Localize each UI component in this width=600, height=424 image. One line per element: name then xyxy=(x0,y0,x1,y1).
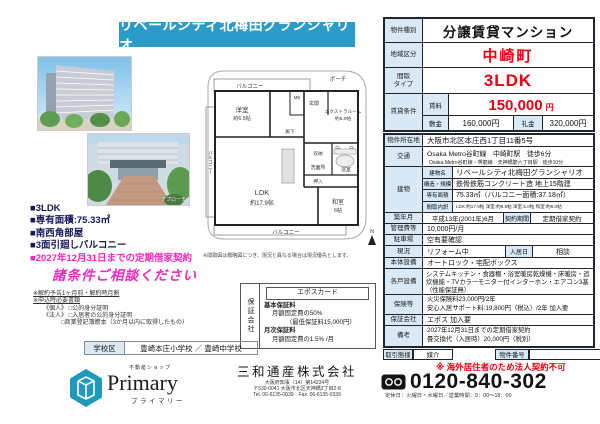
rent-conditions-label: 賃貸条件 xyxy=(385,94,423,130)
condition-label: 現況 xyxy=(385,246,423,257)
mgmt-fee-value: 10,000円/月 xyxy=(423,224,593,234)
access-line1: Osaka Metro谷町線 中崎町駅 徒歩6分 xyxy=(423,147,593,158)
rent-bottom: 敷金 160,000円 礼金 320,000円 xyxy=(423,116,593,130)
parking-value: 空有要確認 xyxy=(423,235,593,245)
guarantee-basic-label: 基本保証料 xyxy=(264,302,371,311)
movein-value: 相談 xyxy=(533,246,593,257)
row-base-equipment: 本体設備 オートロック・宅配ボックス xyxy=(385,258,593,269)
guarantee-company-box: 保証会社 エポスカード 基本保証料 月額固定費の50% （最低保証料15,000… xyxy=(240,283,376,349)
building-structure-row: 構造・規模 鉄骨鉄筋コンクリート造 地上15階建 xyxy=(423,179,593,190)
building-size-row: 専有面積 75.33㎡（バルコニー面積:37.18㎡） xyxy=(423,190,593,201)
primary-shop-logo: 不動産ショップ Primary プライマリー xyxy=(68,364,218,420)
floor-plan-drawing: バルコニー ポーチ MB 洋室 約6.5帖 玄関 エクストラルーム 約5.0帖 … xyxy=(194,57,378,250)
row-guarantor: 保証会社 エポス 加入要 xyxy=(385,315,593,326)
contract-term-label: 契約期間 xyxy=(503,213,531,223)
building-label: 建物 xyxy=(385,167,423,212)
remarks-label: 備考 xyxy=(385,326,423,346)
floor-plan-note: ※間取図は概略図につき、現況と異なる場合は現況優先とします。 xyxy=(203,252,379,259)
school-district-label: 学校区 xyxy=(85,342,125,354)
unit-equipment-text: システムキッチン・食器棚・浴室暖房乾燥機・床暖房・追炊機能・TVカラーモニター付… xyxy=(423,269,593,298)
insurance-label: 保険等 xyxy=(385,295,423,314)
parking-label: 駐車場 xyxy=(385,235,423,245)
fp-balcony-top-label: バルコニー xyxy=(236,83,263,90)
fp-oshiire-label: 押入 xyxy=(313,178,323,185)
access-label: 交通 xyxy=(385,147,423,166)
guarantee-basic-line1: 月額固定費の50% xyxy=(264,310,371,319)
fp-extra-room-size: 約5.0帖 xyxy=(335,115,351,122)
layout-label-line2: タイプ xyxy=(394,81,414,89)
address-label: 物件所在地 xyxy=(385,135,423,146)
row-mgmt-fee: 管理費等 10,000円/月 xyxy=(385,224,593,235)
highlight-item: ■専有面積:75.33㎡ xyxy=(30,215,210,227)
approach-caption: アプローチ xyxy=(161,196,186,203)
insurance-line1: 火災保険料23,000円/2年 xyxy=(427,296,593,305)
building-structure-label: 構造・規模 xyxy=(423,179,453,189)
remarks-value: 2027年12月31日までの定期借家契約 畳交換代（入居時）20,000円（税別… xyxy=(423,326,593,346)
row-rent: 賃貸条件 賃料 150,000 円 敷金 160,000円 礼金 320,000… xyxy=(385,94,593,130)
built-value: 平成13年(2001年)6月 xyxy=(423,213,503,223)
guarantor-value: エポス 加入要 xyxy=(423,315,593,325)
fp-hallway-label: 廊下 xyxy=(285,128,295,135)
fp-ldk-size: 約17.9帖 xyxy=(250,199,274,207)
key-money-label: 礼金 xyxy=(513,116,543,130)
rent-value: 150,000 円 xyxy=(449,94,593,115)
address-value: 大阪市北区本庄西1丁目11番5号 xyxy=(423,135,593,146)
rent-top: 賃料 150,000 円 xyxy=(423,94,593,116)
remarks-line1: 2027年12月31日までの定期借家契約 xyxy=(427,327,593,336)
highlight-item: ■3LDK xyxy=(30,203,210,215)
spec-table-top: 物件種別 分譲賃貸マンション 地域区分 中崎町 間取 タイプ 3LDK 賃貸条件… xyxy=(383,17,595,132)
guarantee-monthly-label: 月次保証料 xyxy=(264,327,371,336)
company-name: 三和通産株式会社 xyxy=(227,361,367,380)
building-rooms-row: 間取内訳 LDK:約17.9帖 洋室:約6.5帖 洋室:5.0帖 和室:約6.0… xyxy=(423,202,593,212)
fp-washitsu-size: 6帖 xyxy=(334,206,342,214)
entrance-approach-photo: アプローチ xyxy=(88,134,189,205)
company-block: 三和通産株式会社 大阪府知事（14）第14234号 〒530-0041 大阪市北… xyxy=(227,361,367,399)
building-structure-value: 鉄骨鉄筋コンクリート造 地上15階建 xyxy=(453,179,593,189)
built-label: 築年月 xyxy=(385,213,423,223)
guarantee-side-label: 保証会社 xyxy=(241,284,260,348)
insurance-line2: 安心入居サポート料:19,800円（税込）/2年 加入要 xyxy=(427,305,593,314)
fp-washitsu-label: 和室 xyxy=(332,198,344,206)
rent-amount: 150,000 xyxy=(488,97,542,114)
primary-logo-icon xyxy=(68,368,104,408)
row-building: 建物 建物名 リベールシティ北梅田グランシャリオ 構造・規模 鉄骨鉄筋コンクリー… xyxy=(385,167,593,213)
school-district-value: 豊崎本庄小学校 ／ 豊崎中学校 xyxy=(125,342,257,354)
condition-value: リフォーム中 xyxy=(423,246,505,257)
building-size-value: 75.33㎡（バルコニー面積:37.18㎡） xyxy=(453,190,593,200)
fp-mb-label: MB xyxy=(294,95,300,100)
building-exterior-photo xyxy=(38,57,131,130)
layout-label: 間取 タイプ xyxy=(385,68,423,93)
row-address: 物件所在地 大阪市北区本庄西1丁目11番5号 xyxy=(385,135,593,147)
highlight-item: ■南西角部屋 xyxy=(30,228,210,240)
rent-unit: 円 xyxy=(546,102,554,113)
unit-equipment-label: 各戸設備 xyxy=(385,269,423,294)
svg-text:N: N xyxy=(370,229,374,235)
fp-balcony-left-label: バルコニー xyxy=(208,151,214,174)
row-parking: 駐車場 空有要確認 xyxy=(385,235,593,246)
row-access: 交通 Osaka Metro谷町線 中崎町駅 徒歩6分 Osaka Metro谷… xyxy=(385,147,593,167)
layout-value: 3LDK xyxy=(423,68,593,93)
row-layout: 間取 タイプ 3LDK xyxy=(385,68,593,94)
deal-type-value: 媒介 xyxy=(413,349,453,360)
building-name-label: 建物名 xyxy=(423,167,453,178)
floor-plan: バルコニー ポーチ MB 洋室 約6.5帖 玄関 エクストラルーム 約5.0帖 … xyxy=(194,57,378,250)
consult-message: 諸条件ご相談ください xyxy=(52,264,197,284)
building-exterior-illustration xyxy=(38,57,131,130)
company-telfax: Tel. 06-6135-0039 Fax. 06-6135-0339 xyxy=(227,392,367,398)
base-equipment-value: オートロック・宅配ボックス xyxy=(423,258,593,268)
unit-equipment-value: システムキッチン・食器棚・浴室暖房乾燥機・床暖房・追炊機能・TVカラーモニター付… xyxy=(423,269,593,294)
logo-name: Primary xyxy=(107,371,185,395)
row-remarks: 備考 2027年12月31日までの定期借家契約 畳交換代（入居時）20,000円… xyxy=(385,326,593,346)
entrance-approach-illustration xyxy=(88,134,189,205)
building-rooms-value: LDK:約17.9帖 洋室:約6.5帖 洋室:5.0帖 和室:約6.0帖 xyxy=(453,202,593,212)
fine-print: ※解約予告1ヶ月前・解約時月割 ※申込時必要書類 《個人》 □公的身分証明 《法… xyxy=(33,291,188,327)
property-title-banner: リベールシティ北梅田グランシャリオ xyxy=(119,22,355,47)
row-condition: 現況 リフォーム中 入居日 相談 xyxy=(385,246,593,258)
property-type-value: 分譲賃貸マンション xyxy=(423,19,593,42)
fp-porch-label: ポーチ xyxy=(330,76,347,83)
school-district-row: 学校区 豊崎本庄小学校 ／ 豊崎中学校 xyxy=(84,341,258,355)
fp-balcony-bottom-label: バルコニー xyxy=(272,229,299,236)
building-size-label: 専有面積 xyxy=(423,190,453,200)
rent-wrap: 賃料 150,000 円 敷金 160,000円 礼金 320,000円 xyxy=(423,94,593,130)
row-property-type: 物件種別 分譲賃貸マンション xyxy=(385,19,593,43)
row-unit-equipment: 各戸設備 システムキッチン・食器棚・浴室暖房乾燥機・床暖房・追炊機能・TVカラー… xyxy=(385,269,593,295)
contract-term-value: 定期借家契約 xyxy=(531,213,593,223)
business-hours: 定休日：火曜日・水曜日／営業時間：9：00～18：00 xyxy=(385,391,512,399)
deposit-label: 敷金 xyxy=(423,116,449,130)
building-rooms-label: 間取内訳 xyxy=(423,202,453,212)
layout-label-line1: 間取 xyxy=(397,73,410,81)
fp-bathroom-label: 浴室 xyxy=(341,166,351,173)
movein-label: 入居日 xyxy=(505,246,533,257)
area-label: 地域区分 xyxy=(385,43,423,67)
rent-label: 賃料 xyxy=(423,94,449,115)
key-money-value: 320,000円 xyxy=(543,116,593,130)
building-details: 建物名 リベールシティ北梅田グランシャリオ 構造・規模 鉄骨鉄筋コンクリート造 … xyxy=(423,167,593,212)
building-name-row: 建物名 リベールシティ北梅田グランシャリオ xyxy=(423,167,593,179)
remarks-line2: 畳交換代（入居時）20,000円（税別） xyxy=(427,336,593,345)
fp-western-room-size: 約6.5帖 xyxy=(233,114,251,122)
highlight-list: ■3LDK ■専有面積:75.33㎡ ■南西角部屋 ■3面引廻しバルコニー ■2… xyxy=(30,203,210,265)
access-line2: Osaka Metro谷町線・堺筋線 天神橋筋六丁目駅 徒歩10分 xyxy=(423,158,593,167)
guarantor-label: 保証会社 xyxy=(385,315,423,325)
fp-storage-label: 収納 xyxy=(313,150,323,157)
property-number-label: 物件番号 xyxy=(495,349,529,360)
highlight-item: ■3面引廻しバルコニー xyxy=(30,240,210,252)
insurance-value: 火災保険料23,000円/2年 安心入居サポート料:19,800円（税込）/2年… xyxy=(423,295,593,314)
flyer-page: リベールシティ北梅田グランシャリオ xyxy=(0,0,600,424)
fine-print-line: 《個人》 □公的身分証明 xyxy=(33,306,188,313)
spec-table-main: 物件所在地 大阪市北区本庄西1丁目11番5号 交通 Osaka Metro谷町線… xyxy=(383,133,595,348)
fp-entrance-label: 玄関 xyxy=(309,100,319,107)
guarantee-monthly-line1: 月額固定費の1.5% /月 xyxy=(264,336,371,345)
guarantee-card-name: エポスカード xyxy=(266,287,369,300)
fp-cl2-label: CL xyxy=(349,145,355,150)
guarantee-content: エポスカード 基本保証料 月額固定費の50% （最低保証料15,000円） 月次… xyxy=(260,284,375,348)
base-equipment-label: 本体設備 xyxy=(385,258,423,268)
logo-kana: プライマリー xyxy=(107,395,185,405)
row-insurance: 保険等 火災保険料23,000円/2年 安心入居サポート料:19,800円（税込… xyxy=(385,295,593,315)
fp-western-room-label: 洋室 xyxy=(236,105,250,114)
property-number-value xyxy=(529,349,600,360)
primary-logo-text: 不動産ショップ Primary プライマリー xyxy=(107,364,185,405)
building-name-value: リベールシティ北梅田グランシャリオ xyxy=(453,167,593,178)
mgmt-fee-label: 管理費等 xyxy=(385,224,423,234)
access-value: Osaka Metro谷町線 中崎町駅 徒歩6分 Osaka Metro谷町線・… xyxy=(423,147,593,166)
deal-type-label: 取引態様 xyxy=(383,349,413,360)
fp-washroom-label: 洗面所 xyxy=(310,164,325,171)
fp-cl1-label: CL xyxy=(335,145,341,150)
row-area: 地域区分 中崎町 xyxy=(385,43,593,68)
area-value: 中崎町 xyxy=(423,43,593,67)
deal-row: 取引態様 媒介 物件番号 xyxy=(383,349,600,360)
property-type-label: 物件種別 xyxy=(385,19,423,42)
freedial-icon xyxy=(381,374,406,390)
fp-ldk-label: LDK xyxy=(255,188,270,197)
fine-print-line: □商業登記簿謄本（3か月以内に取得したもの） xyxy=(33,320,188,327)
deal-gap xyxy=(453,349,495,360)
row-built: 築年月 平成13年(2001年)6月 契約期間 定期借家契約 xyxy=(385,213,593,224)
deposit-value: 160,000円 xyxy=(449,116,513,130)
fine-print-line: ※申込時必要書類 xyxy=(33,298,188,305)
